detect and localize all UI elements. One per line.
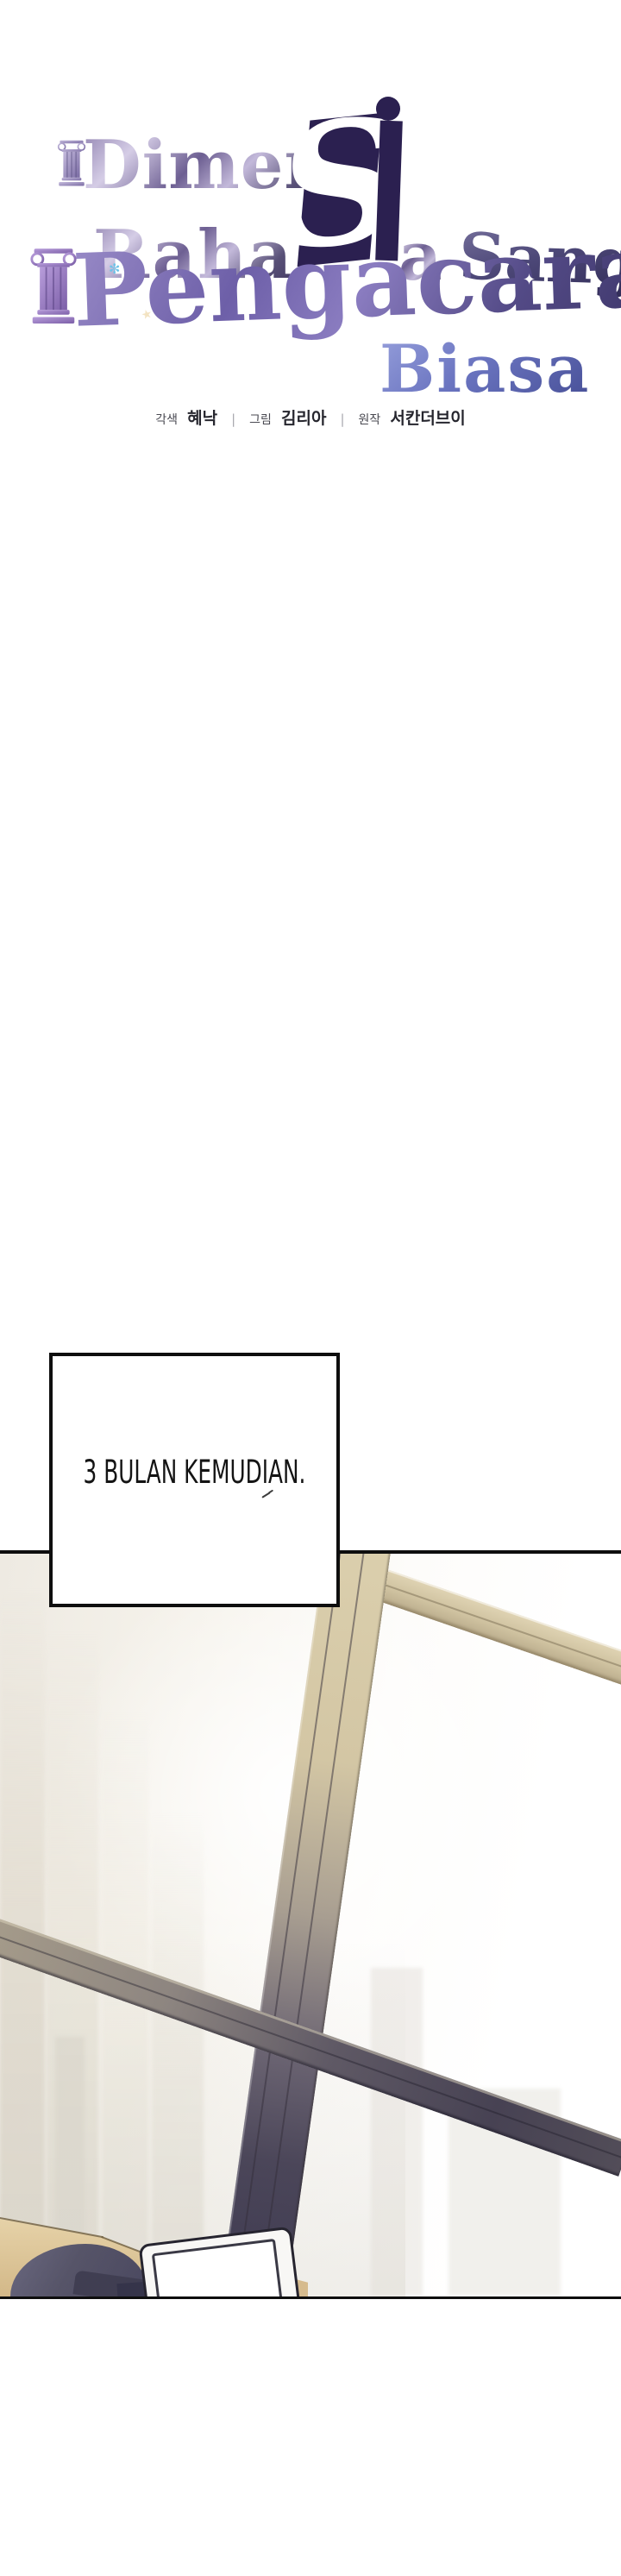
credit-name: 서칸더브이 — [390, 409, 465, 428]
caption-box: 3 BULAN KEMUDIAN. — [49, 1353, 340, 1607]
tablet-screen — [152, 2239, 283, 2299]
credit-separator: | — [231, 412, 235, 427]
credit-item: 원작 서칸더브이 — [359, 405, 466, 429]
caption-text: 3 BULAN KEMUDIAN. — [81, 1455, 308, 1491]
illustration-panel — [0, 1554, 621, 2299]
credits-line: 각색 혜낙 | 그림 김리아 | 원작 서칸더브이 — [0, 405, 621, 429]
credit-name: 김리아 — [281, 409, 326, 428]
sparkle-icon: ✦ — [523, 273, 536, 288]
credit-role: 각색 — [155, 413, 178, 427]
panel-bottom-border — [0, 2296, 621, 2299]
credit-name: 혜낙 — [187, 409, 217, 428]
logo-word-biasa: Biasa — [379, 330, 590, 407]
credit-item: 각색 혜낙 — [155, 405, 217, 429]
credit-separator: | — [340, 412, 344, 427]
sparkle-icon: ✼ — [109, 262, 120, 276]
credit-role: 그림 — [249, 413, 272, 427]
logo-word-pengacara: Pengacara — [71, 212, 621, 350]
title-logo: Dimen S Raha a Sang Pengacara Biasa ✼ ★ … — [0, 0, 621, 449]
webtoon-page: { "page": {"width": 720, "height": 2986,… — [0, 0, 621, 2576]
credit-item: 그림 김리아 — [249, 405, 326, 429]
credit-role: 원작 — [359, 413, 381, 427]
column-icon — [57, 135, 86, 193]
sparkle-icon: ✦ — [505, 357, 514, 368]
logo-big-i-dot — [376, 97, 400, 121]
column-icon — [29, 247, 78, 328]
